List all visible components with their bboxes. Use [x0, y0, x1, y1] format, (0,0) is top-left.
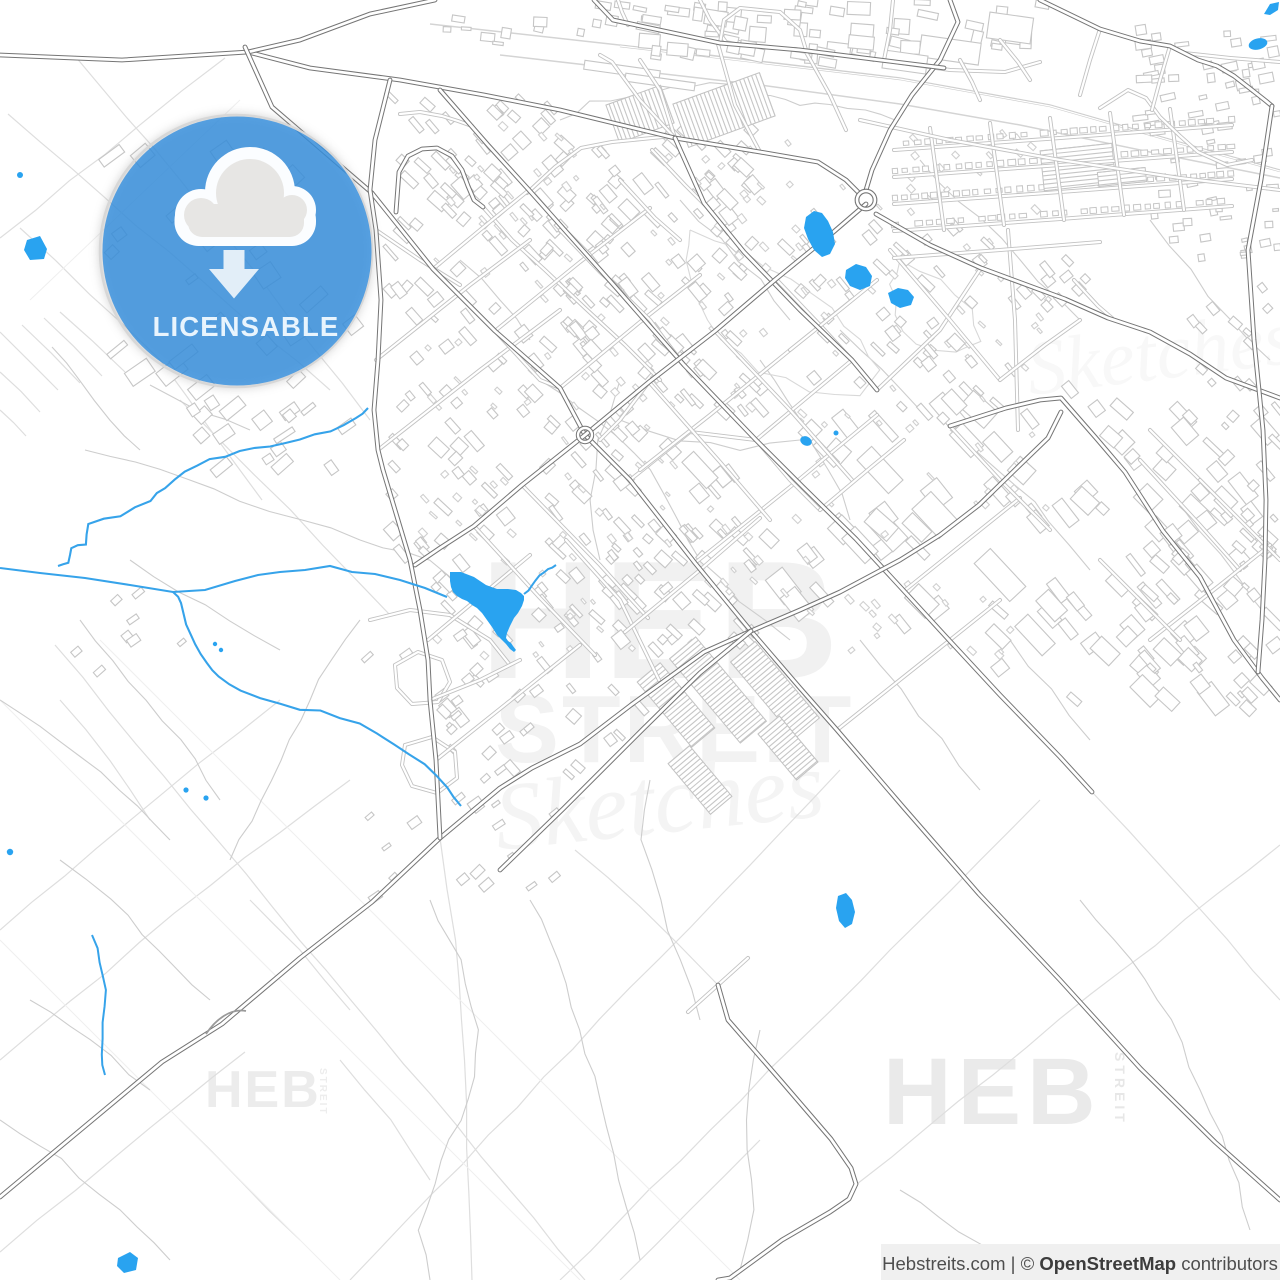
svg-text:STREIT: STREIT	[317, 1068, 328, 1116]
svg-text:LICENSABLE: LICENSABLE	[153, 311, 340, 342]
svg-text:HEB: HEB	[883, 1039, 1102, 1145]
svg-text:Hebstreits.com | © OpenStreetM: Hebstreits.com | © OpenStreetMap contrib…	[882, 1253, 1278, 1274]
svg-text:STREIT: STREIT	[1112, 1052, 1128, 1126]
